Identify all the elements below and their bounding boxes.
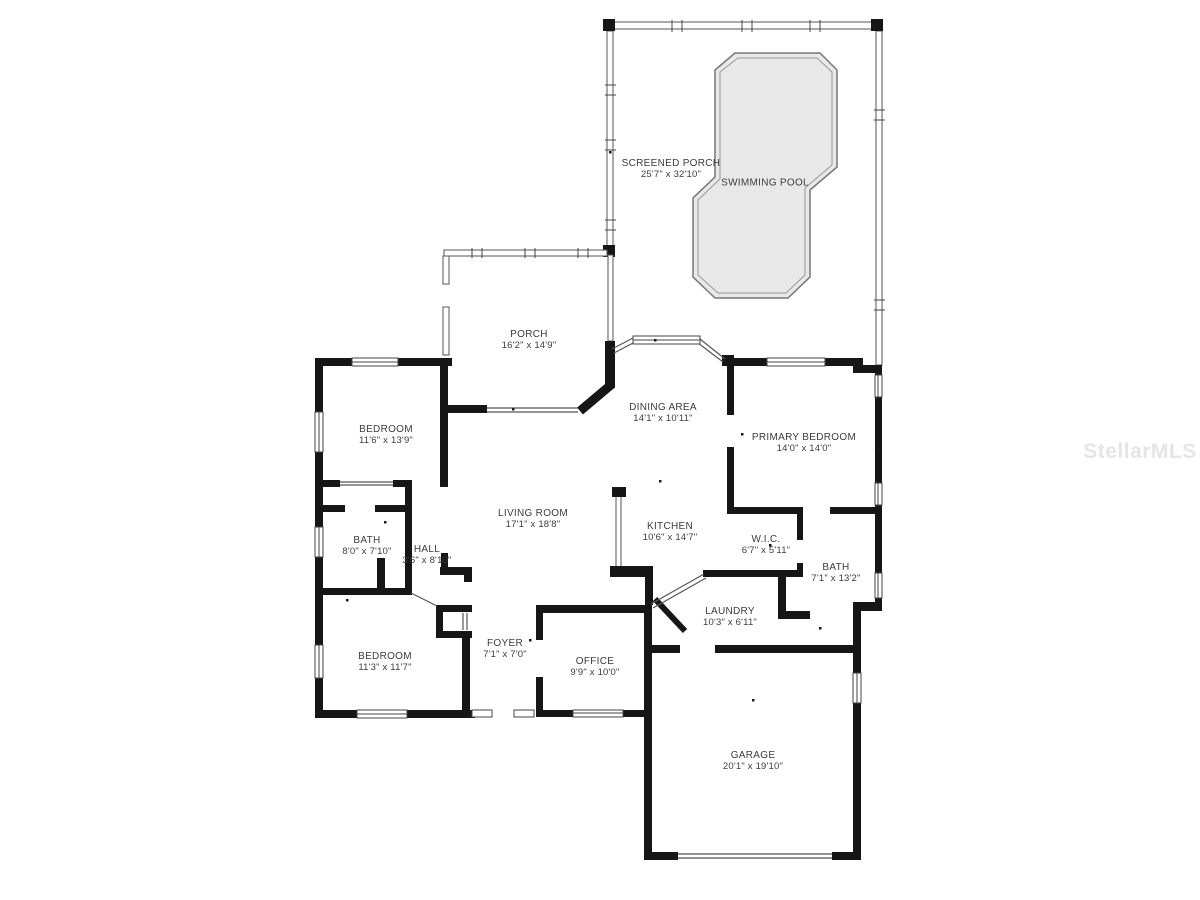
- swimming-pool-shape: [693, 53, 837, 298]
- porch-walls: [443, 248, 613, 355]
- watermark: StellarMLS: [1083, 440, 1197, 464]
- kitchen-counter: [616, 497, 621, 566]
- house-walls: [315, 341, 882, 860]
- floorplan-drawing: [0, 0, 1200, 900]
- floorplan-page: SCREENED PORCH 25'7" x 32'10" SWIMMING P…: [0, 0, 1200, 900]
- thin-lines: [340, 338, 832, 858]
